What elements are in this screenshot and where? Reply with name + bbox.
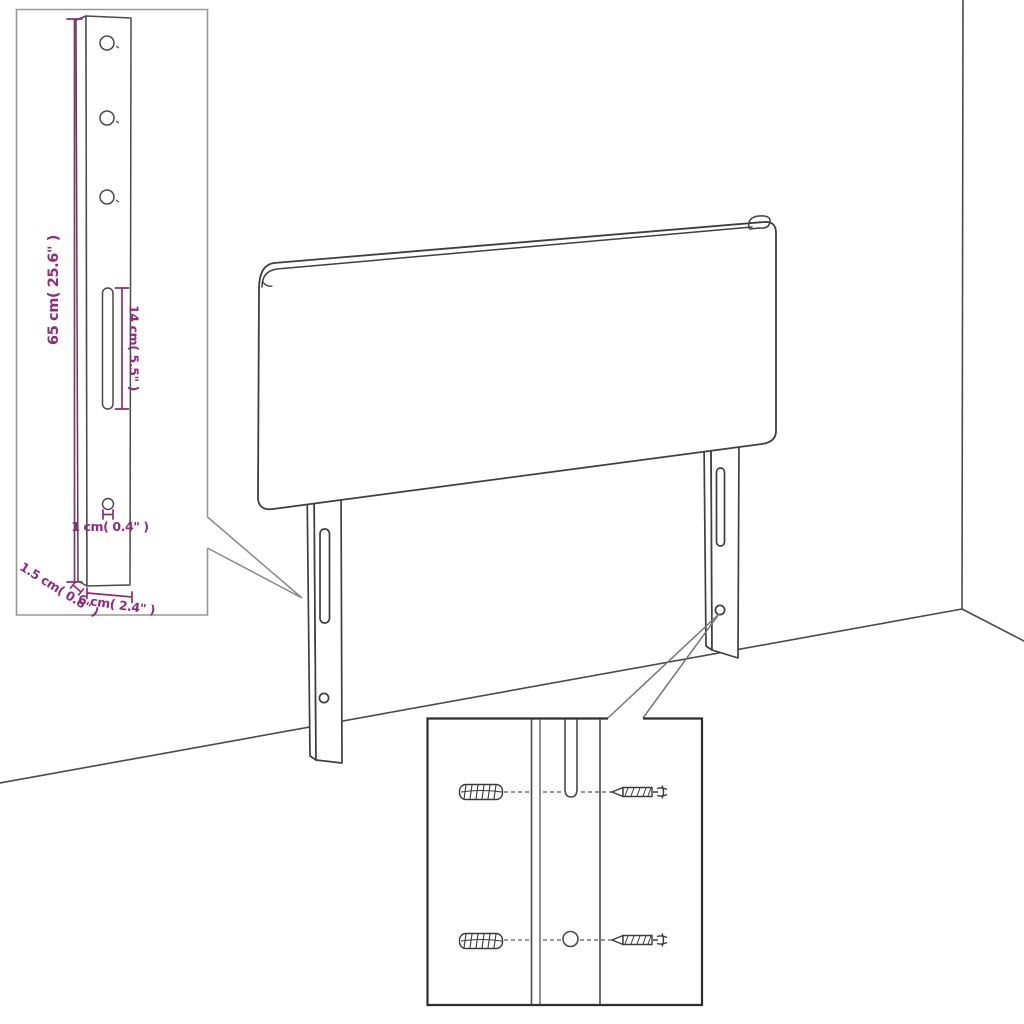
assembly-diagram: 65 cm( 25.6" ) 14 cm( 5.5" ) 1 cm( 0.4" … (0, 0, 1024, 1024)
left-leg-hole (319, 693, 328, 702)
headboard-panel (258, 216, 776, 509)
panel-outline (258, 222, 776, 509)
dim-slot-label: 14 cm( 5.5" ) (127, 305, 142, 391)
floor-line-right (962, 609, 1024, 641)
dim-height-label: 65 cm( 25.6" ) (46, 235, 62, 345)
left-leg-slot (320, 529, 330, 623)
dim-hole-label: 1 cm( 0.4" ) (71, 519, 148, 534)
hardware-detail-inset (428, 614, 720, 1005)
right-leg-slot (717, 468, 725, 546)
left-leg (307, 480, 342, 763)
leg-inset-callout-lines (208, 517, 303, 598)
right-leg-hole (715, 605, 724, 614)
wall-corner-line (962, 0, 963, 609)
inset-leg-hole-3 (100, 190, 114, 204)
assembly-diagram-page: 65 cm( 25.6" ) 14 cm( 5.5" ) 1 cm( 0.4" … (0, 0, 1024, 1024)
inset-leg-side-face (76, 16, 87, 586)
hardware-callout-lines (608, 614, 719, 718)
right-leg (704, 440, 739, 658)
inset-leg-hole-2 (100, 111, 114, 125)
inset-leg-slot (103, 288, 114, 409)
inset-leg-hole-1 (100, 36, 114, 50)
inset-leg-bottom-hole (103, 499, 114, 510)
